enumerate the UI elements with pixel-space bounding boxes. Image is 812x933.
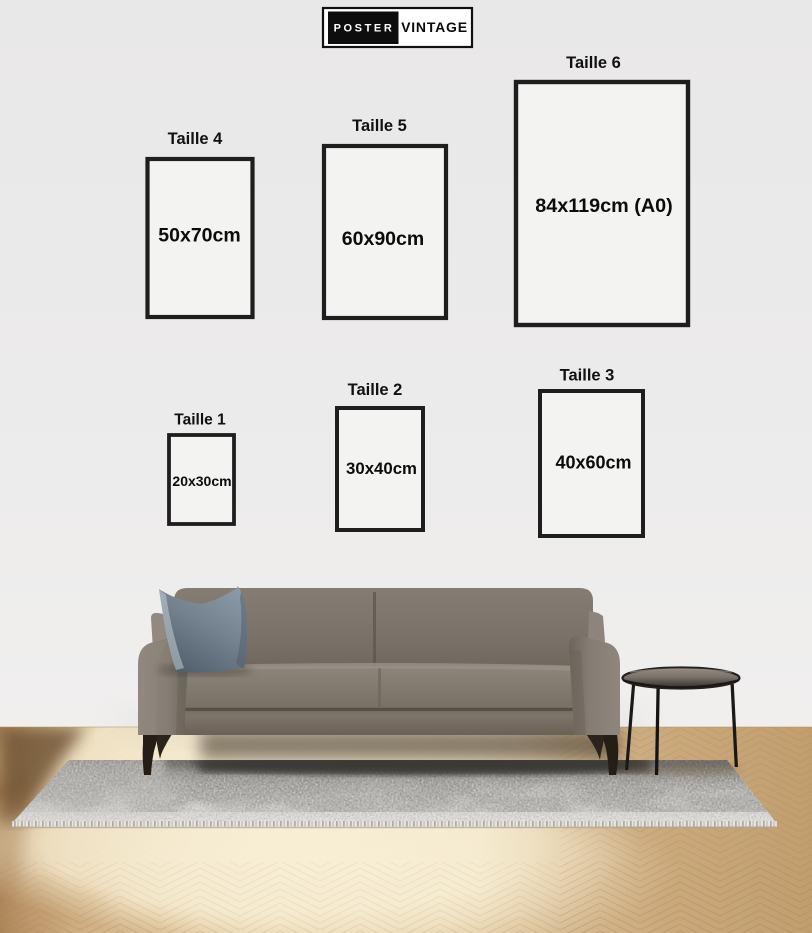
svg-text:Taille 1: Taille 1 [174,412,226,429]
svg-text:VINTAGE: VINTAGE [401,19,468,35]
svg-text:Taille 6: Taille 6 [566,54,621,72]
svg-text:84x119cm (A0): 84x119cm (A0) [535,195,672,217]
svg-text:60x90cm: 60x90cm [342,228,424,250]
svg-text:Taille 4: Taille 4 [168,130,224,148]
svg-text:50x70cm: 50x70cm [158,225,240,247]
svg-text:40x60cm: 40x60cm [555,453,631,473]
svg-text:Taille 3: Taille 3 [560,367,615,385]
svg-text:20x30cm: 20x30cm [172,473,231,489]
svg-text:30x40cm: 30x40cm [346,459,417,478]
svg-text:Taille 2: Taille 2 [348,381,403,399]
svg-text:POSTER: POSTER [334,22,395,34]
svg-text:Taille 5: Taille 5 [352,117,407,135]
